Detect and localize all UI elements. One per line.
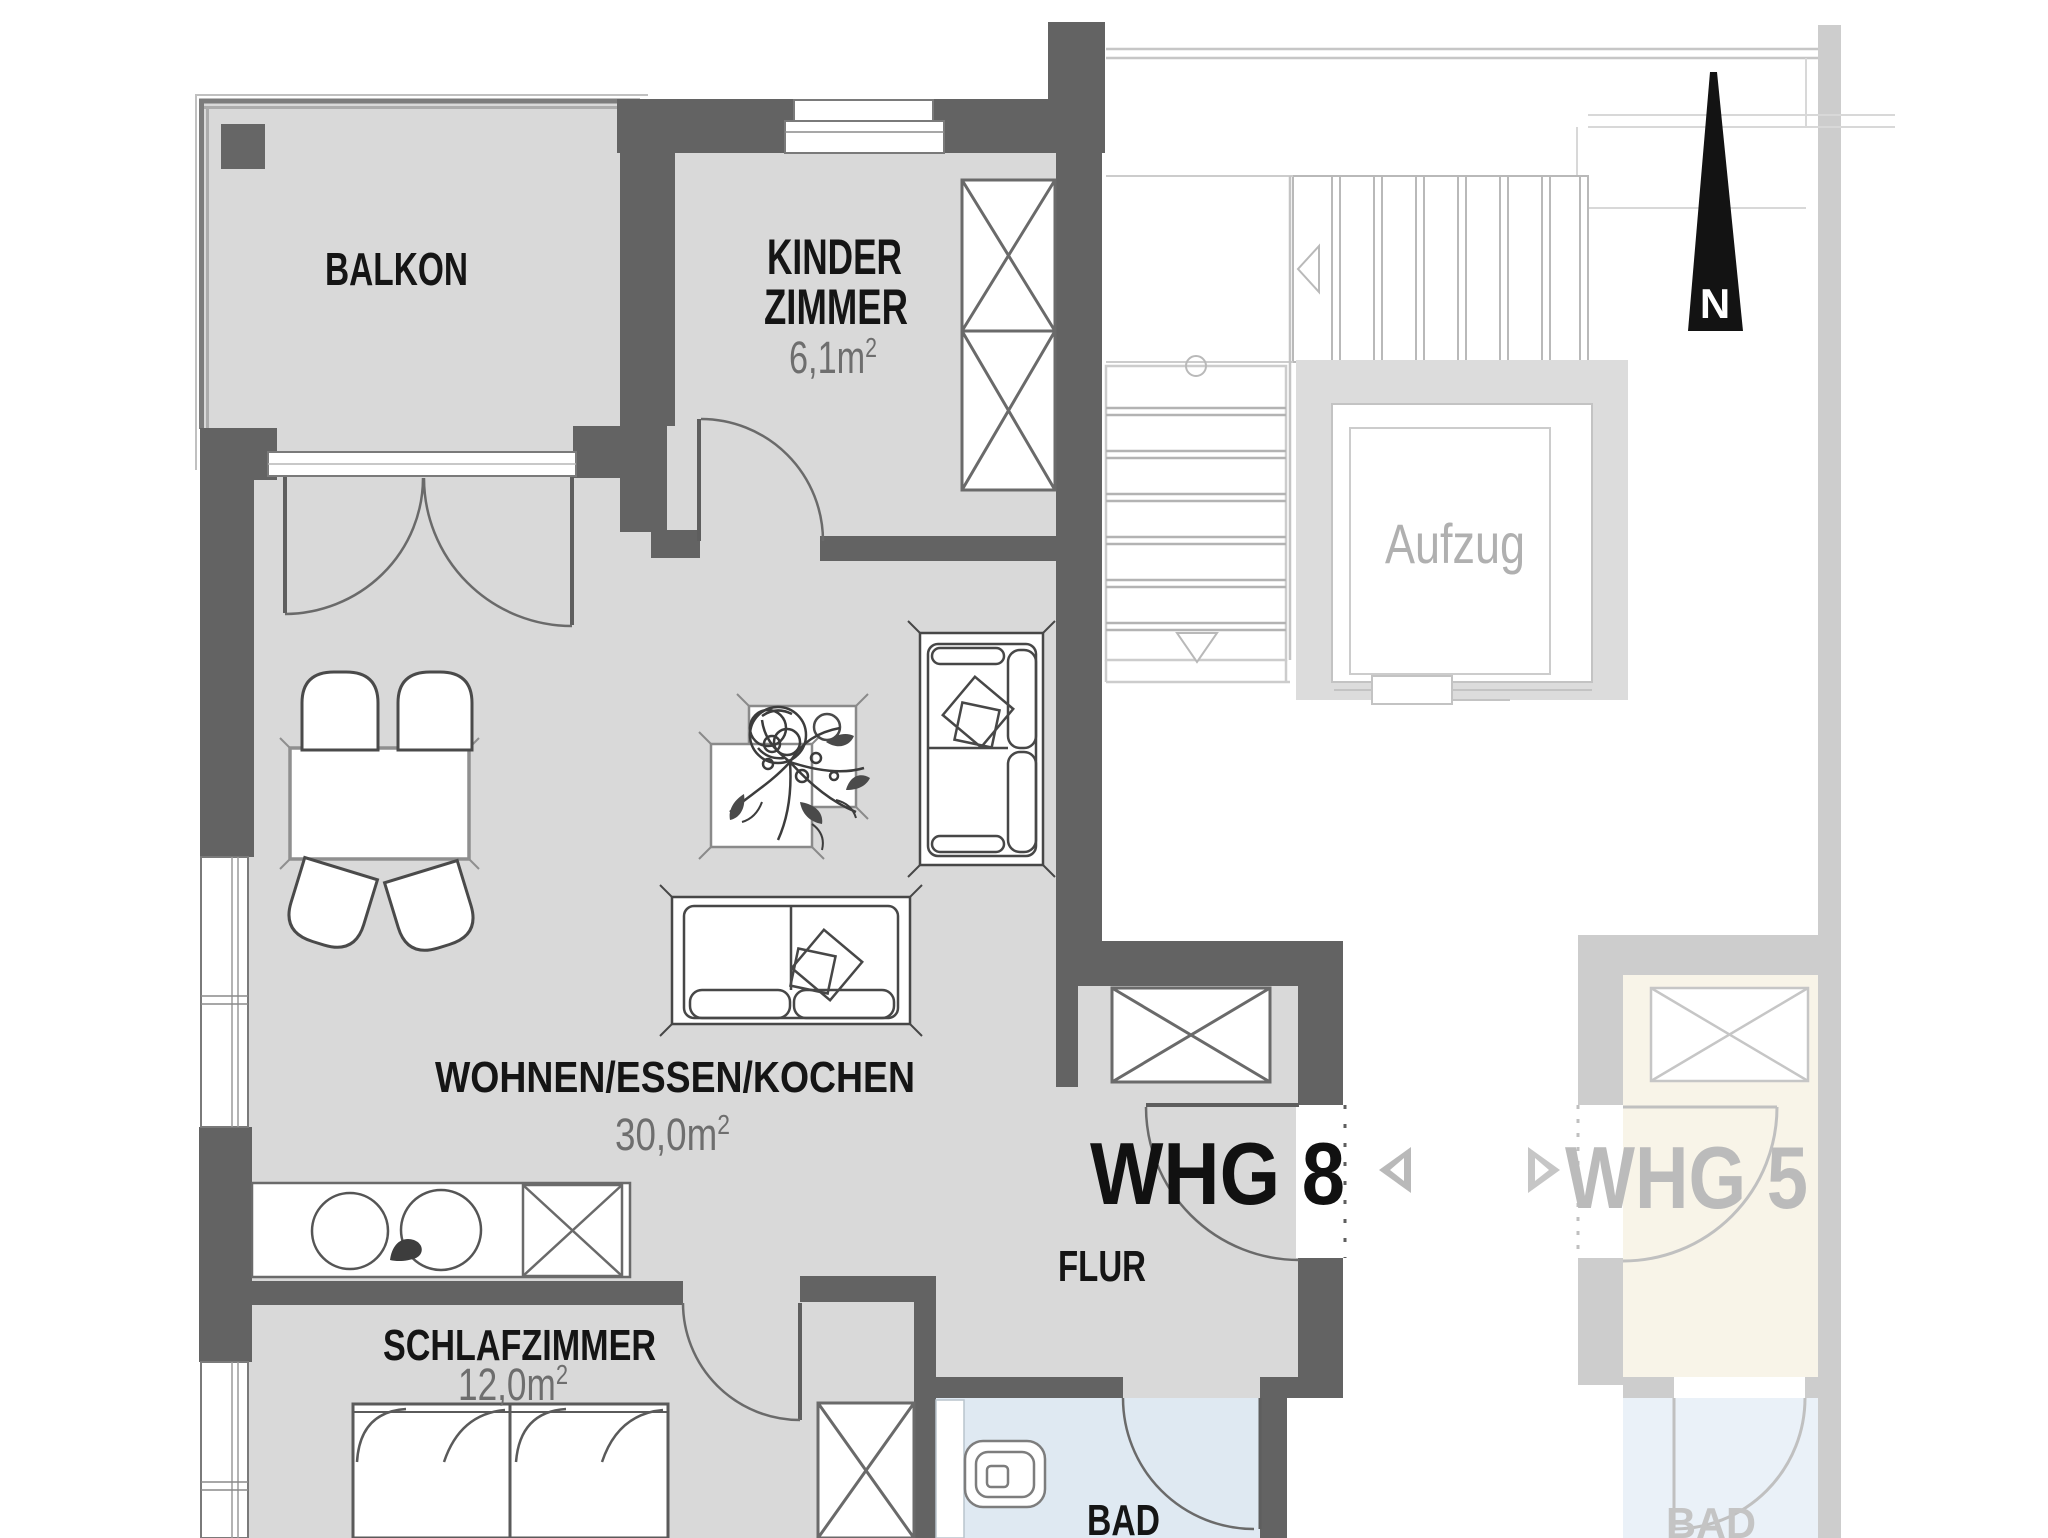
svg-text:BAD: BAD bbox=[1087, 1496, 1160, 1538]
svg-text:WHG 5: WHG 5 bbox=[1565, 1128, 1808, 1227]
svg-text:ZIMMER: ZIMMER bbox=[764, 279, 908, 335]
svg-text:12,0m2: 12,0m2 bbox=[458, 1359, 568, 1410]
svg-text:N: N bbox=[1700, 280, 1730, 327]
svg-text:WOHNEN/ESSEN/KOCHEN: WOHNEN/ESSEN/KOCHEN bbox=[435, 1053, 915, 1102]
svg-text:30,0m2: 30,0m2 bbox=[615, 1109, 730, 1160]
svg-text:KINDER: KINDER bbox=[767, 229, 902, 285]
svg-text:BALKON: BALKON bbox=[325, 243, 468, 295]
svg-text:FLUR: FLUR bbox=[1058, 1242, 1146, 1291]
svg-text:WHG 8: WHG 8 bbox=[1090, 1124, 1345, 1223]
svg-text:BAD: BAD bbox=[1666, 1499, 1756, 1538]
svg-text:6,1m2: 6,1m2 bbox=[789, 332, 877, 383]
svg-text:Aufzug: Aufzug bbox=[1385, 512, 1525, 575]
